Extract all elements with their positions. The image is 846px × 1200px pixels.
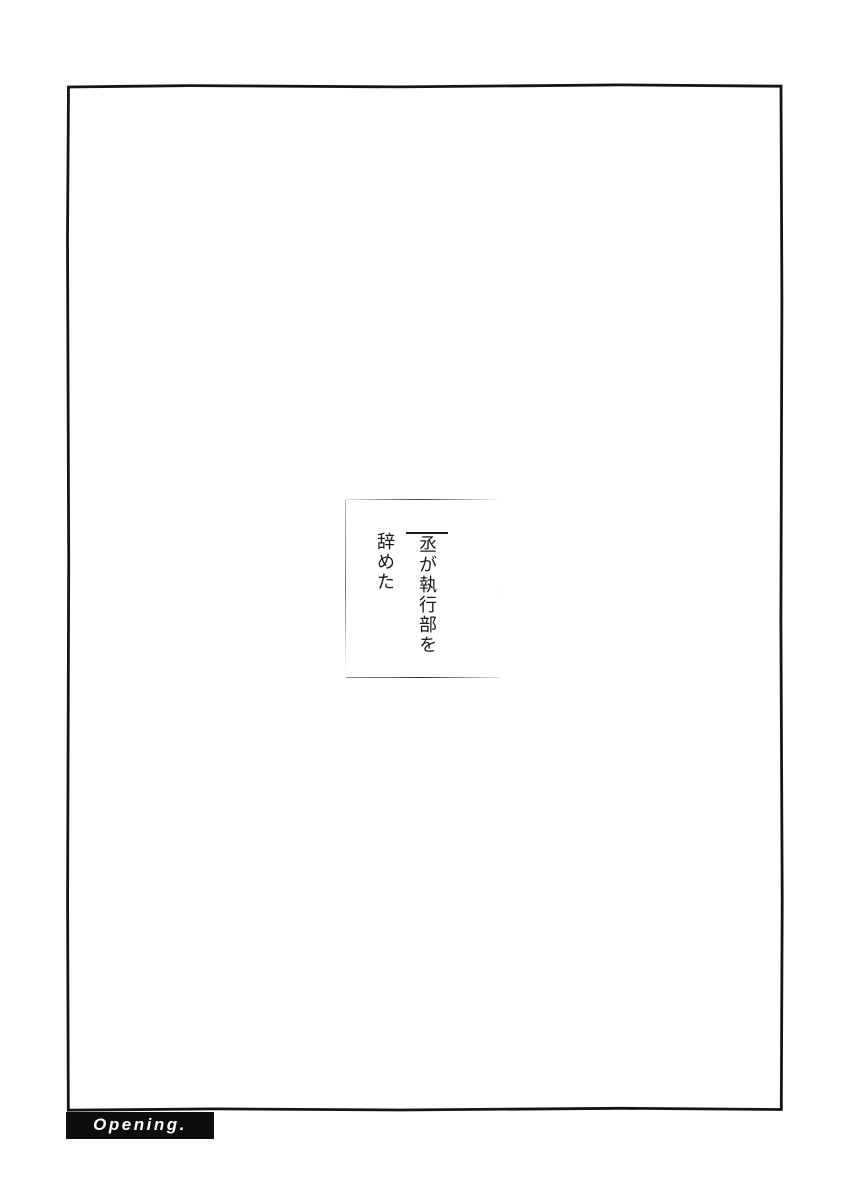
opening-caption-box: Opening. [66,1112,214,1139]
manga-page: 丞が執行部を 辞めた Opening. [0,0,846,1200]
dialogue-line-1: 丞が執行部を [406,532,448,655]
opening-caption-label: Opening. [93,1116,187,1133]
dialogue-line-1-rest: が執行部を [417,555,437,655]
dialogue-text: 丞が執行部を 辞めた [364,532,448,655]
character-name-emphasized: 丞 [406,532,448,555]
dialogue-line-2: 辞めた [364,532,406,655]
